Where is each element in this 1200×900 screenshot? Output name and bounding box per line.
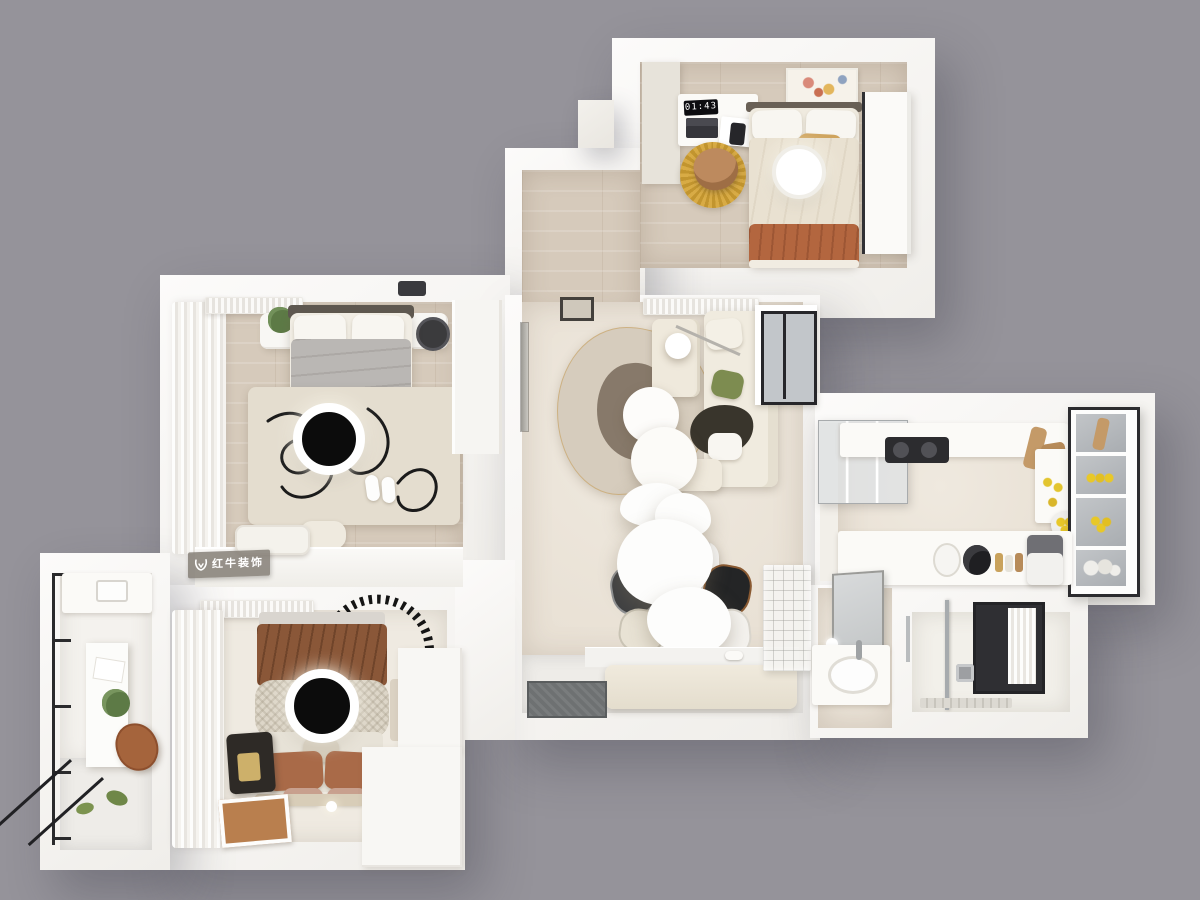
burner-right <box>921 442 937 458</box>
guest-wardrobe <box>862 92 911 254</box>
bull-logo-icon <box>194 558 208 572</box>
shower-valve <box>956 664 974 682</box>
burner-left <box>893 442 909 458</box>
entry-shoes <box>725 651 743 660</box>
shower-glass-divider <box>945 600 949 710</box>
second-ceiling-lamp <box>285 669 359 743</box>
balcony-glazing <box>52 573 71 845</box>
guest-tall-cabinet <box>642 62 680 184</box>
washbasin <box>828 656 878 694</box>
desk-clock-time: 01:43 <box>685 101 718 113</box>
pantry-lemons-2 <box>1087 514 1115 534</box>
master-ceiling-lamp <box>293 403 365 475</box>
brand-watermark-text: 红牛装饰 <box>212 550 264 578</box>
living-art-frame <box>560 297 594 321</box>
laptop <box>686 118 718 138</box>
guest-pillow-left <box>751 109 802 141</box>
floor-ball-lamp <box>326 801 337 812</box>
balcony-sink <box>96 580 128 602</box>
bathroom-window-curtain <box>1008 608 1036 684</box>
cooktop <box>885 437 949 463</box>
master-bedroom <box>160 275 510 598</box>
floor-drain <box>920 698 1012 708</box>
master-wall-speaker <box>398 281 426 296</box>
balcony-study <box>40 553 170 870</box>
balcony-cabinet <box>62 573 152 613</box>
hallway <box>505 148 645 318</box>
towel-bar <box>906 616 910 662</box>
entry-doormat <box>527 681 607 718</box>
floor-picture-frame <box>218 794 292 848</box>
bathroom <box>810 540 1088 738</box>
slipper-right <box>381 477 396 504</box>
guest-art-frame <box>786 68 858 104</box>
living-window-glass <box>761 311 817 405</box>
master-door-handle <box>521 323 528 431</box>
entry-bench <box>605 665 797 709</box>
phone <box>729 122 746 145</box>
bathroom-window <box>973 602 1045 694</box>
living-window-mullion <box>783 311 786 399</box>
arc-lamp-shade <box>665 333 691 359</box>
black-table-lamp <box>416 317 450 351</box>
suitcase-gold-tag <box>237 752 261 781</box>
guest-bedroom: 01:43 <box>612 38 935 318</box>
apartment-floorplan-render: 01:43 <box>0 0 1200 900</box>
guest-foot-bench <box>749 260 859 268</box>
pantry-lemons-1 <box>1085 472 1115 484</box>
desk-paper <box>92 657 125 683</box>
master-curtains <box>172 302 226 554</box>
sofa-cushion-bottom <box>708 433 742 460</box>
balcony-plant <box>102 689 130 717</box>
master-wardrobe-column <box>452 300 502 454</box>
guest-ceiling-lamp <box>772 145 826 199</box>
basin-faucet <box>856 640 862 660</box>
living-room <box>505 295 820 740</box>
living-window <box>755 305 817 405</box>
ac-outdoor-unit <box>578 100 614 148</box>
second-wardrobe-upper <box>398 648 462 750</box>
glass-block-partition <box>763 565 811 671</box>
brand-watermark: 红牛装饰 <box>188 550 270 579</box>
second-bedroom <box>160 585 465 870</box>
desk-clock: 01:43 <box>684 99 719 116</box>
second-wardrobe-lower <box>362 747 462 867</box>
